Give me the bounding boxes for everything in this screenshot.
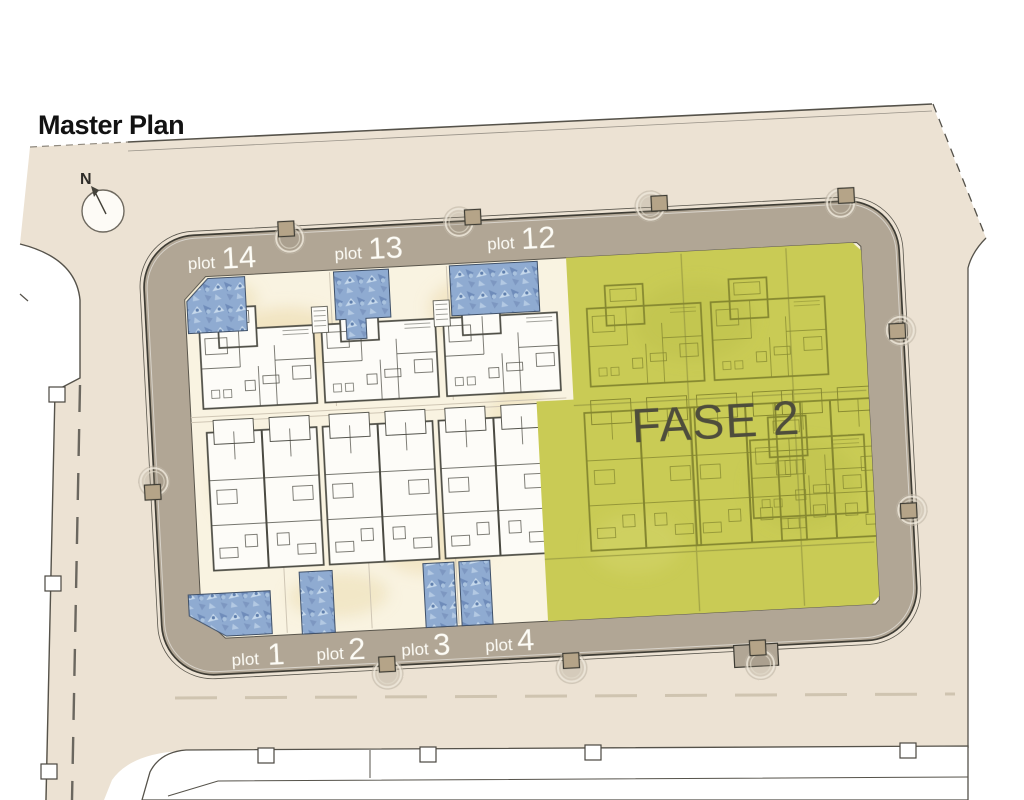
page-title: Master Plan xyxy=(38,110,184,140)
plot-label-number: 2 xyxy=(347,631,366,667)
pool-plot3 xyxy=(423,562,457,628)
stairwell xyxy=(433,300,450,327)
plot-label-number: 1 xyxy=(266,636,285,672)
street-right-edge xyxy=(968,238,986,748)
compass-north-label: N xyxy=(80,171,92,188)
plot-label-number: 4 xyxy=(516,622,535,658)
stairwell xyxy=(311,306,328,333)
utility-marker xyxy=(889,323,906,339)
floor-plan-unit xyxy=(206,415,324,571)
plot-label-number: 12 xyxy=(520,219,556,256)
residential-block: FASE 2 plot 14 plot 13 plot 12 xyxy=(124,177,936,713)
pool-plot4 xyxy=(459,560,493,626)
floor-plans-white xyxy=(198,290,569,570)
plot-label-word: plot xyxy=(231,649,260,669)
plot-label-word: plot xyxy=(316,644,345,664)
plot-label-word: plot xyxy=(187,253,216,273)
utility-marker xyxy=(464,209,481,225)
pool-plot12 xyxy=(449,261,539,316)
utility-marker xyxy=(900,503,917,519)
utility-marker xyxy=(144,484,161,500)
site-plan-svg: FASE 2 plot 14 plot 13 plot 12 xyxy=(0,0,1024,800)
plot-label-word: plot xyxy=(334,243,363,263)
utility-marker xyxy=(278,221,295,237)
plot-label-word: plot xyxy=(485,635,514,655)
adjacent-parcel xyxy=(142,743,968,800)
utility-marker xyxy=(749,640,766,656)
pool-plot2 xyxy=(299,570,335,634)
road-marker xyxy=(45,576,61,591)
master-plan-drawing: FASE 2 plot 14 plot 13 plot 12 xyxy=(0,0,1024,800)
utility-marker xyxy=(379,656,396,672)
plot-label-word: plot xyxy=(401,639,430,659)
plot-label-number: 3 xyxy=(432,626,451,662)
plot-label-word: plot xyxy=(487,233,516,253)
road-marker xyxy=(49,387,65,402)
utility-marker xyxy=(563,653,580,669)
phase2-label: FASE 2 xyxy=(630,392,801,454)
floor-plan-unit xyxy=(438,403,556,559)
floor-plan-unit xyxy=(322,409,440,565)
tick-mark xyxy=(20,294,28,301)
plot-label-number: 13 xyxy=(367,229,403,266)
road-marker xyxy=(41,764,57,779)
plot-label-number: 14 xyxy=(221,239,257,276)
utility-marker xyxy=(651,195,668,211)
utility-marker xyxy=(838,188,855,204)
